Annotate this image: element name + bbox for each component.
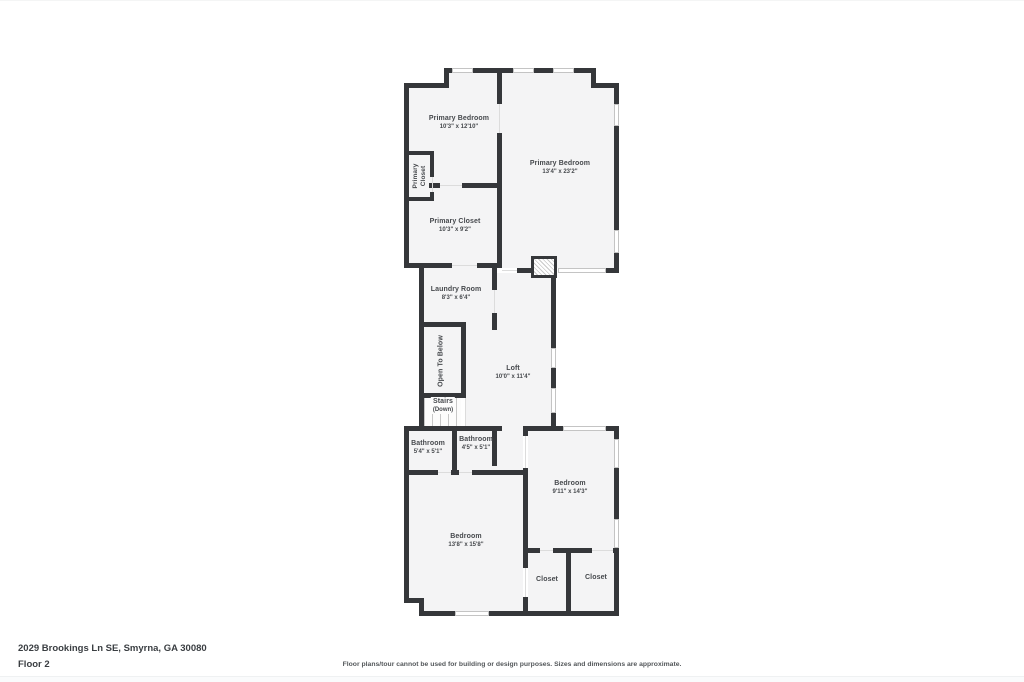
door-opening [525, 568, 526, 597]
room-name: Closet [536, 575, 558, 584]
room-dims: 8'3" x 6'4" [431, 294, 482, 302]
window [614, 104, 619, 126]
room-label-open-to-below: Open To Below [437, 335, 446, 387]
wall [404, 470, 438, 475]
door-opening [432, 177, 433, 192]
window [614, 519, 619, 548]
room-dims: 5'4" x 5'1" [411, 448, 445, 456]
room-name: Primary Closet [430, 217, 481, 226]
room-label-laundry-room: Laundry Room 8'3" x 6'4" [431, 285, 482, 302]
door-opening [440, 185, 462, 186]
window [614, 230, 619, 253]
room-area [449, 73, 591, 88]
room-label-primary-closet: Primary Closet 10'3" x 9'2" [430, 217, 481, 234]
wall [492, 268, 497, 290]
room-label-bathroom-left: Bathroom 5'4" x 5'1" [411, 439, 445, 456]
wall [404, 263, 452, 268]
room-name: Bedroom [553, 479, 588, 488]
room-dims: 4'5" x 5'1" [459, 444, 493, 452]
wall [566, 548, 571, 616]
wall [523, 468, 528, 568]
window [614, 439, 619, 468]
wall [613, 548, 619, 553]
room-dims: (Down) [431, 406, 455, 414]
room-label-bedroom-main: Bedroom 13'8" x 15'8" [448, 532, 483, 549]
window [558, 268, 606, 273]
room-name: Primary Bedroom [530, 159, 590, 168]
wall [419, 268, 424, 426]
room-dims: 13'4" x 23'2" [530, 168, 590, 176]
room-label-bedroom-right: Bedroom 9'11" x 14'3" [553, 479, 588, 496]
door-opening [502, 270, 517, 271]
door-opening [452, 265, 477, 266]
wall [404, 426, 409, 603]
wall [430, 151, 434, 177]
floor-plan: Primary Bedroom 10'3" x 12'10" Primary B… [0, 0, 1024, 682]
wall [606, 268, 619, 273]
room-name: Stairs [431, 397, 455, 406]
room-label-stairs: Stairs (Down) [431, 397, 455, 414]
floor-label: Floor 2 [18, 659, 50, 670]
room-name: Closet [585, 573, 607, 582]
room-dims: 9'11" x 14'3" [553, 488, 588, 496]
door-opening [494, 290, 495, 313]
window [513, 68, 534, 73]
address-label: 2029 Brookings Ln SE, Smyrna, GA 30080 [18, 643, 207, 654]
wall [452, 426, 457, 475]
window [553, 68, 574, 73]
window [455, 611, 489, 616]
wall [404, 83, 449, 88]
room-name: Bedroom [448, 532, 483, 541]
footer-strip [0, 676, 1024, 682]
room-name: Loft [496, 364, 531, 373]
door-opening [465, 398, 466, 426]
door-opening [438, 472, 451, 473]
room-name: Primary Closet [412, 155, 428, 197]
floor-plan-page: Primary Bedroom 10'3" x 12'10" Primary B… [0, 0, 1024, 682]
wall [472, 470, 528, 475]
wall [523, 426, 528, 436]
room-label-primary-bedroom-right: Primary Bedroom 13'4" x 23'2" [530, 159, 590, 176]
room-label-bathroom-right: Bathroom 4'5" x 5'1" [459, 435, 493, 452]
room-dims: 13'8" x 15'8" [448, 541, 483, 549]
door-opening [540, 550, 553, 551]
room-dims: 10'3" x 12'10" [429, 123, 489, 131]
wall [461, 327, 466, 398]
wall [419, 322, 466, 327]
room-area [528, 431, 614, 611]
wall [477, 263, 502, 268]
wall [497, 133, 502, 268]
wall [406, 197, 434, 201]
disclaimer-text: Floor plans/tour cannot be used for buil… [343, 660, 682, 669]
room-area [424, 598, 528, 611]
room-name: Open To Below [437, 335, 446, 387]
room-label-closet-right: Closet [585, 573, 607, 582]
room-name: Laundry Room [431, 285, 482, 294]
room-label-primary-bedroom-left: Primary Bedroom 10'3" x 12'10" [429, 114, 489, 131]
door-opening [525, 436, 526, 468]
wall [492, 313, 497, 330]
wall [462, 183, 497, 188]
wall [451, 470, 459, 475]
wall [523, 548, 540, 553]
window [551, 348, 556, 368]
room-dims: 10'0" x 11'4" [496, 373, 531, 381]
wall [429, 183, 440, 188]
room-name: Bathroom [459, 435, 493, 444]
wall [419, 611, 619, 616]
window [452, 68, 473, 73]
door-opening [592, 550, 613, 551]
window [551, 388, 556, 413]
room-dims: 10'3" x 9'2" [430, 226, 481, 234]
wall [419, 598, 424, 616]
room-name: Primary Bedroom [429, 114, 489, 123]
room-label-closet-left: Closet [536, 575, 558, 584]
wall [497, 68, 502, 104]
wall [404, 83, 409, 268]
wall [553, 548, 592, 553]
window [563, 426, 606, 431]
chimney [531, 256, 557, 278]
door-opening [459, 472, 472, 473]
door-opening [499, 104, 500, 133]
room-label-primary-closet-small: Primary Closet [412, 155, 428, 197]
room-label-loft: Loft 10'0" x 11'4" [496, 364, 531, 381]
room-name: Bathroom [411, 439, 445, 448]
